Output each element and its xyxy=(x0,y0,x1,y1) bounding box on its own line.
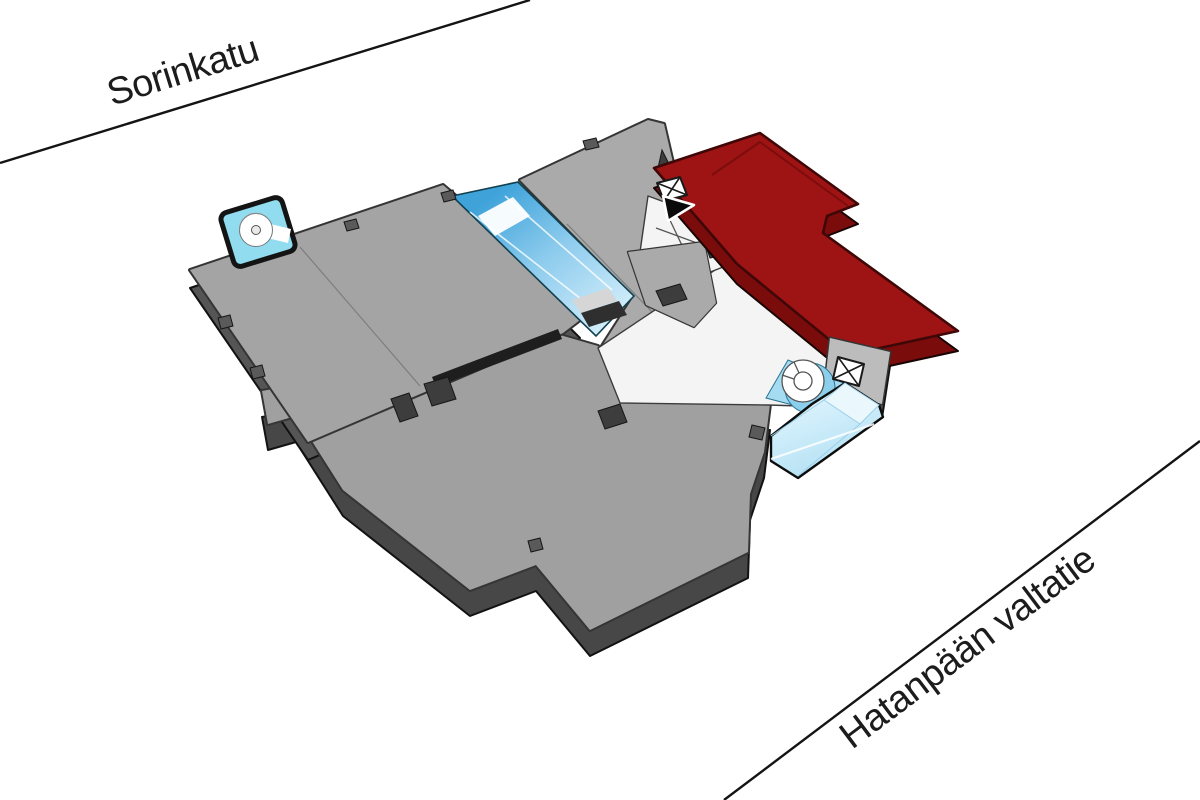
facade-tab xyxy=(528,538,543,552)
street-label-sorinkatu: Sorinkatu xyxy=(102,28,263,115)
street-line-hatanpaan-valtatie xyxy=(724,441,1200,800)
street-line-sorinkatu xyxy=(0,0,530,163)
facade-tab xyxy=(250,365,265,379)
location-map: Sorinkatu Hatanpään valtatie xyxy=(0,0,1200,800)
street-bottom: Hatanpään valtatie xyxy=(724,441,1200,800)
facade-tab xyxy=(749,425,765,440)
street-label-hatanpaan-valtatie: Hatanpään valtatie xyxy=(832,538,1103,757)
street-top: Sorinkatu xyxy=(0,0,530,163)
map-canvas: Sorinkatu Hatanpään valtatie xyxy=(0,0,1200,800)
facade-tab xyxy=(218,315,233,329)
building xyxy=(190,120,958,656)
